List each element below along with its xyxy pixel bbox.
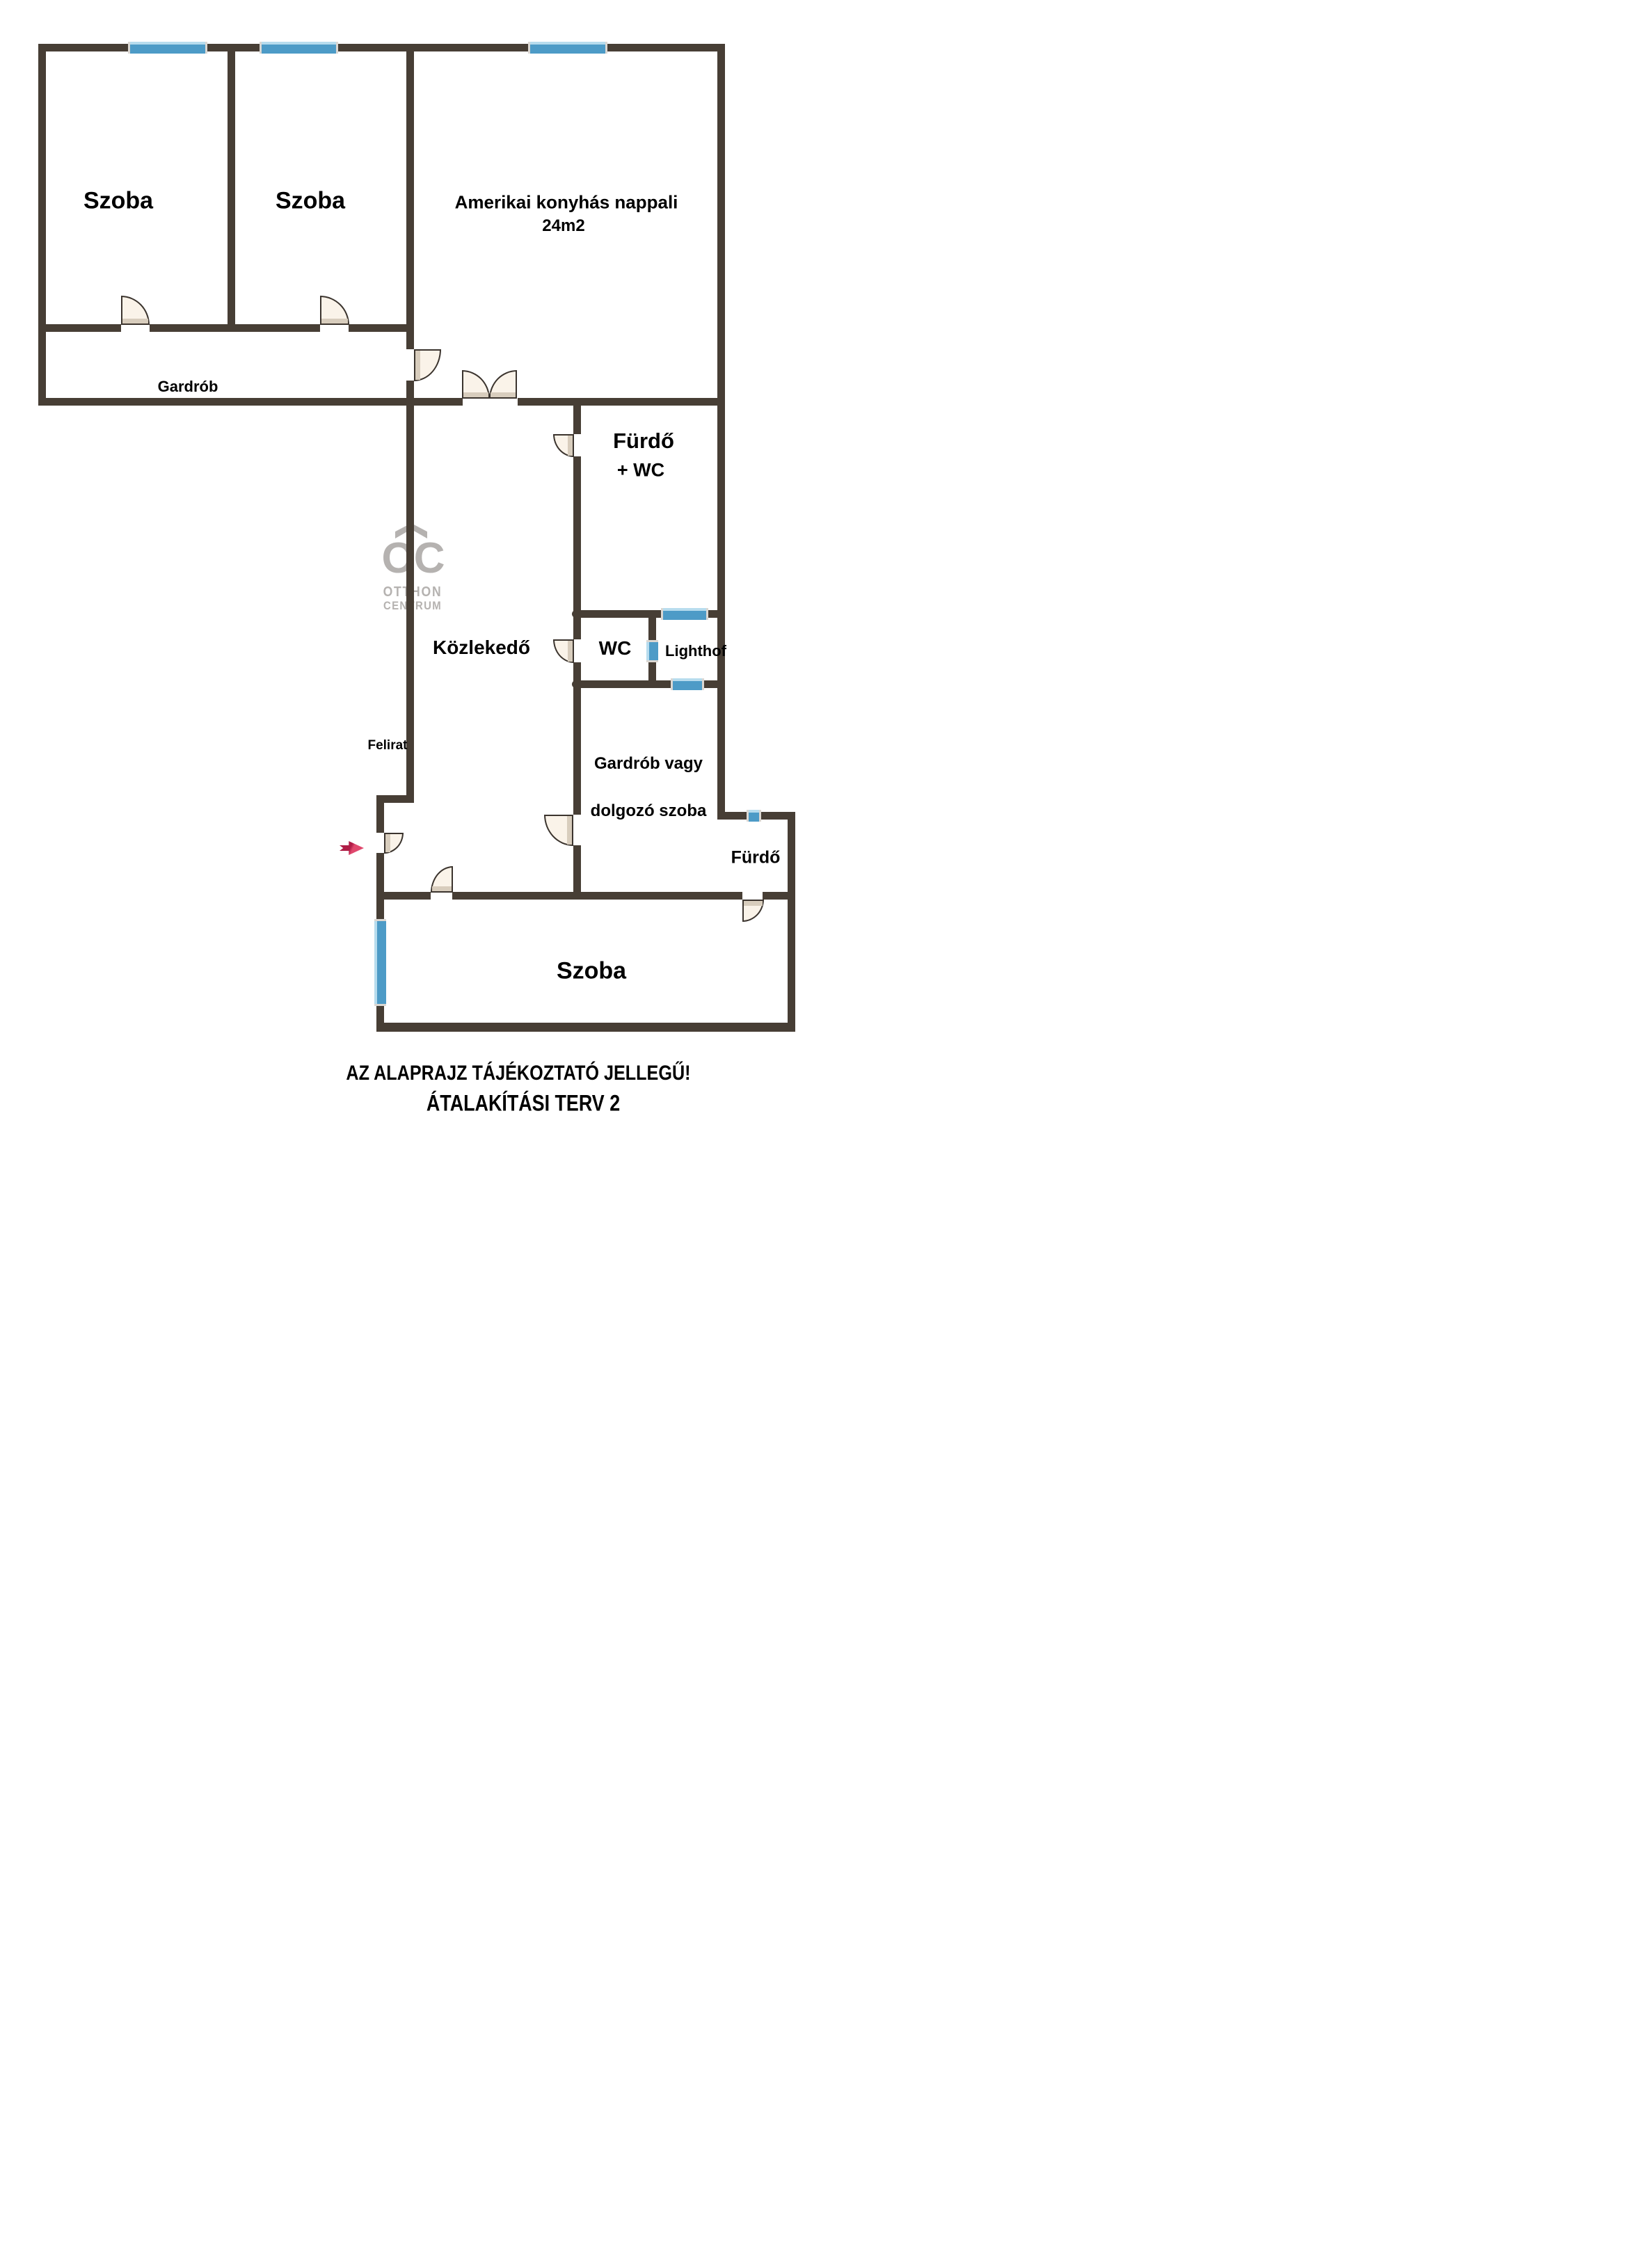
door-dolgozo [544, 815, 573, 846]
window-furdo2 [747, 810, 761, 822]
wall-szoba1-szoba2 [228, 51, 235, 324]
door-entrance [384, 833, 404, 854]
wall-szoba-bottom-c [349, 324, 414, 332]
window-furdo-wc [661, 608, 708, 620]
room-label-gardrob: Gardrób [158, 378, 218, 396]
wall-entry-a [376, 795, 384, 833]
wall-corridor-right-a [573, 406, 581, 434]
wall-gardrob-bottom-a [38, 398, 463, 406]
door-szoba1 [121, 296, 150, 325]
wall-corridor-right-c [573, 662, 581, 815]
room-label-dolgozo-szoba: dolgozó szoba [591, 801, 707, 821]
wall-szoba3-top-a [376, 892, 431, 900]
window-szoba1 [128, 42, 207, 54]
door-nappali-double-right [489, 370, 517, 399]
window-wc-lighthof [646, 640, 658, 662]
room-label-gardrob-vagy: Gardrób vagy [594, 754, 703, 774]
door-szoba3 [431, 866, 453, 893]
room-label-furdo-wc2: + WC [617, 460, 664, 481]
wall-corridor-left [406, 381, 414, 803]
wall-left [38, 44, 46, 406]
window-lighthof-bottom [671, 678, 704, 690]
room-label-furdo2: Fürdő [731, 848, 781, 868]
room-label-szoba1: Szoba [83, 188, 153, 215]
label-felirat: Felirat [367, 738, 407, 753]
wall-szoba2-nappali-a [406, 51, 414, 349]
wall-right [717, 51, 725, 820]
wall-bottom [376, 1023, 795, 1032]
wall-gardrob-bottom-b [518, 398, 725, 406]
door-wc [553, 639, 574, 663]
window-szoba2 [260, 42, 338, 54]
door-szoba2 [320, 296, 349, 325]
wall-szoba-bottom-a [38, 324, 121, 332]
room-label-szoba3: Szoba [557, 958, 626, 985]
room-area-nappali: 24m2 [542, 216, 584, 236]
window-nappali [528, 42, 607, 54]
wall-right-lower [788, 812, 795, 1032]
room-label-wc: WC [599, 637, 632, 660]
floor-plan: OC OTTHON CENTRUM [0, 0, 821, 1134]
door-furdo-wc [553, 434, 574, 457]
room-label-nappali: Amerikai konyhás nappali [455, 192, 678, 214]
entrance-arrow-icon [340, 841, 364, 855]
door-nappali-gardrob [414, 349, 441, 381]
room-label-lighthof: Lighthof [665, 642, 726, 660]
caption-disclaimer: AZ ALAPRAJZ TÁJÉKOZTATÓ JELLEGŰ! [346, 1062, 690, 1085]
caption-plan-title: ÁTALAKÍTÁSI TERV 2 [427, 1091, 620, 1117]
wall-wc-lighthof-a [648, 618, 656, 641]
door-furdo2 [742, 900, 764, 922]
wall-szoba3-top-b [452, 892, 742, 900]
room-label-kozlekedo: Közlekedő [433, 637, 530, 659]
wall-corridor-right-d [573, 845, 581, 900]
wall-entry-b [376, 853, 384, 920]
wall-furdowc-bottom-a [572, 610, 661, 618]
wall-corridor-right-b [573, 456, 581, 639]
wall-entry-c [376, 1006, 384, 1032]
door-nappali-double-left [462, 370, 490, 399]
room-label-szoba2: Szoba [276, 188, 345, 215]
window-szoba3 [374, 919, 386, 1006]
wall-szoba-bottom-b [150, 324, 320, 332]
wall-wc-bottom-a [572, 680, 671, 688]
room-label-furdo-wc: Fürdő [613, 429, 674, 454]
wall-wc-lighthof-b [648, 662, 656, 680]
